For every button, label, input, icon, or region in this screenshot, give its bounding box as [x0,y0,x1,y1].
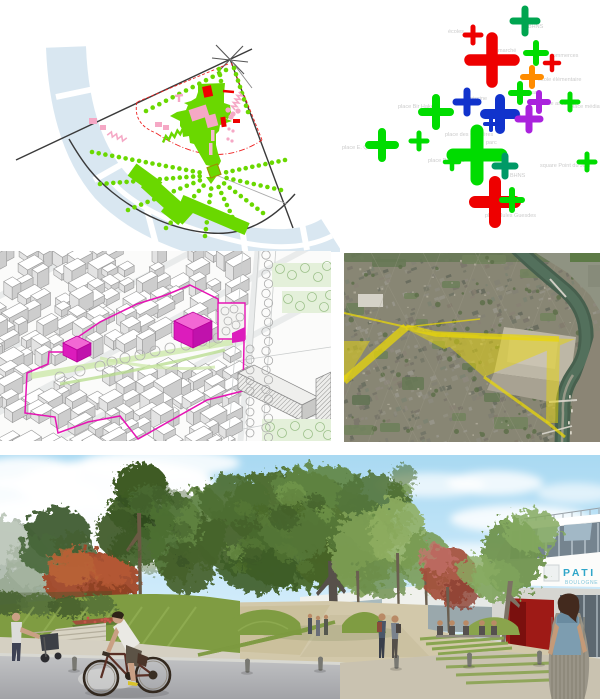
svg-text:marché: marché [498,48,516,54]
svg-text:parc: parc [486,140,497,146]
svg-text:place médiath.: place médiath. [570,104,600,110]
svg-text:BHNS: BHNS [510,173,526,179]
svg-text:PATI: PATI [563,567,596,579]
svg-text:écoles: écoles [448,29,464,35]
svg-text:BHNS: BHNS [528,24,544,30]
svg-text:école élémentaire: école élémentaire [538,77,581,83]
svg-text:BOULOGNE: BOULOGNE [565,580,598,586]
svg-text:place des Glacières: place des Glacières [445,132,494,138]
svg-text:commerces: commerces [550,53,579,59]
